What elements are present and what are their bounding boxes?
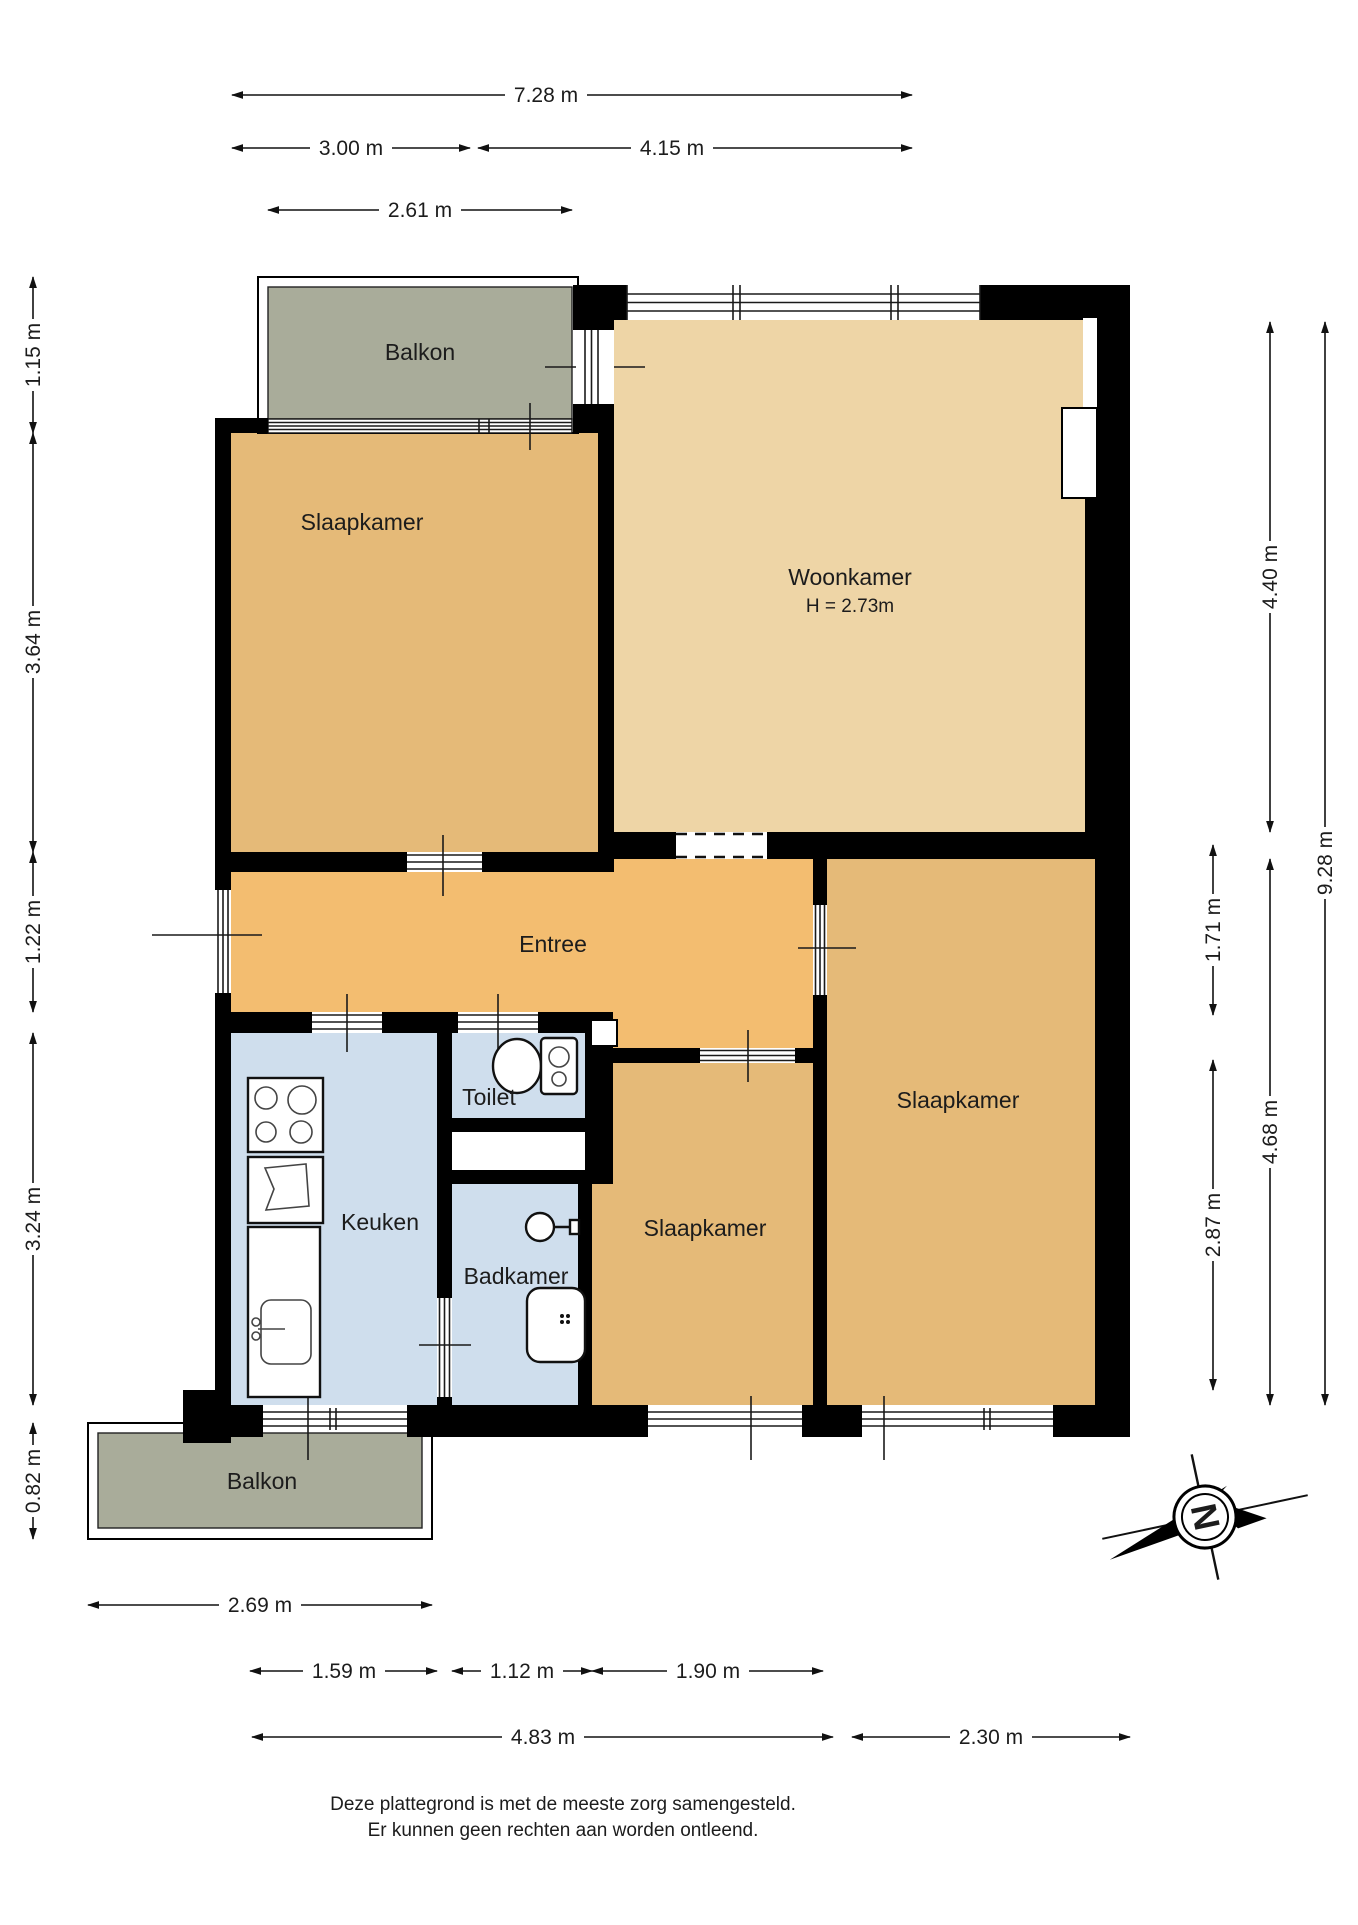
floorplan-drawing: Balkon Slaapkamer Woonkamer H = 2.73m En… xyxy=(0,0,1358,1920)
svg-text:4.68 m: 4.68 m xyxy=(1259,1100,1282,1164)
dim-left-364: 3.64 m xyxy=(20,433,46,852)
dim-left-122: 1.22 m xyxy=(20,852,46,1012)
floorplan-page: Balkon Slaapkamer Woonkamer H = 2.73m En… xyxy=(0,0,1358,1920)
svg-text:3.64 m: 3.64 m xyxy=(22,610,45,674)
room-slaapkamer-east xyxy=(827,859,1095,1405)
keuken-label: Keuken xyxy=(341,1209,419,1235)
footer-line-2: Er kunnen geen rechten aan worden ontlee… xyxy=(368,1820,759,1841)
svg-text:4.83 m: 4.83 m xyxy=(511,1726,575,1749)
toilet-label: Toilet xyxy=(462,1084,516,1110)
slaapkamer-nw-label: Slaapkamer xyxy=(301,509,424,535)
dim-bottom-159: 1.59 m xyxy=(250,1658,437,1684)
bathtub-icon xyxy=(527,1288,585,1362)
dim-right-287: 2.87 m xyxy=(1200,1060,1226,1390)
woonkamer-window-icon xyxy=(627,285,980,320)
svg-text:2.61 m: 2.61 m xyxy=(388,199,452,222)
entree-label: Entree xyxy=(519,931,587,957)
svg-text:2.69 m: 2.69 m xyxy=(228,1594,292,1617)
footer-line-1: Deze plattegrond is met de meeste zorg s… xyxy=(330,1794,796,1815)
dim-right-171: 1.71 m xyxy=(1200,845,1226,1015)
passage-opening xyxy=(676,832,767,859)
dim-top-728: 7.28 m xyxy=(232,82,912,108)
dim-top-261: 2.61 m xyxy=(268,197,572,223)
svg-text:1.22 m: 1.22 m xyxy=(22,900,45,964)
slaapkamer-east-label: Slaapkamer xyxy=(897,1087,1020,1113)
slaapkamer-mid-label: Slaapkamer xyxy=(644,1215,767,1241)
dim-right-468: 4.68 m xyxy=(1257,859,1283,1405)
stove-icon xyxy=(248,1078,323,1152)
svg-text:1.71 m: 1.71 m xyxy=(1202,898,1225,962)
dim-left-082: 0.82 m xyxy=(20,1423,46,1539)
svg-text:9.28 m: 9.28 m xyxy=(1314,831,1337,895)
room-slaapkamer-nw xyxy=(231,433,598,852)
kitchen-counter-icon xyxy=(248,1227,320,1397)
dim-bottom-230: 2.30 m xyxy=(852,1724,1130,1750)
dim-right-440: 4.40 m xyxy=(1257,322,1283,832)
svg-text:4.15 m: 4.15 m xyxy=(640,137,704,160)
dim-top-300: 3.00 m xyxy=(232,135,470,161)
dim-left-324: 3.24 m xyxy=(20,1033,46,1405)
svg-text:2.30 m: 2.30 m xyxy=(959,1726,1023,1749)
woonkamer-height-note: H = 2.73m xyxy=(806,596,894,617)
svg-text:1.12 m: 1.12 m xyxy=(490,1660,554,1683)
svg-text:1.90 m: 1.90 m xyxy=(676,1660,740,1683)
dim-bottom-112: 1.12 m xyxy=(452,1658,592,1684)
svg-text:4.40 m: 4.40 m xyxy=(1259,545,1282,609)
slaapkamer-mid-window-icon xyxy=(648,1396,802,1460)
kitchen-sink-icon xyxy=(248,1157,323,1223)
dim-right-928: 9.28 m xyxy=(1312,322,1338,1405)
footer-disclaimer: Deze plattegrond is met de meeste zorg s… xyxy=(330,1794,796,1841)
woonkamer-label: Woonkamer xyxy=(788,564,912,590)
slaapkamer-east-window-icon xyxy=(862,1396,1053,1460)
svg-text:1.15 m: 1.15 m xyxy=(22,323,45,387)
svg-text:2.87 m: 2.87 m xyxy=(1202,1193,1225,1257)
svg-text:7.28 m: 7.28 m xyxy=(514,84,578,107)
dim-bottom-483: 4.83 m xyxy=(252,1724,833,1750)
dim-left-115: 1.15 m xyxy=(20,277,46,433)
balkon-bottom-label: Balkon xyxy=(227,1468,297,1494)
balkon-top-label: Balkon xyxy=(385,339,455,365)
dim-bottom-190: 1.90 m xyxy=(592,1658,823,1684)
svg-text:3.24 m: 3.24 m xyxy=(22,1187,45,1251)
svg-text:1.59 m: 1.59 m xyxy=(312,1660,376,1683)
dim-bottom-269: 2.69 m xyxy=(88,1592,432,1618)
dim-top-415: 4.15 m xyxy=(478,135,912,161)
compass-icon: N xyxy=(1089,1433,1321,1602)
svg-text:3.00 m: 3.00 m xyxy=(319,137,383,160)
badkamer-label: Badkamer xyxy=(464,1263,569,1289)
svg-text:0.82 m: 0.82 m xyxy=(22,1449,45,1513)
